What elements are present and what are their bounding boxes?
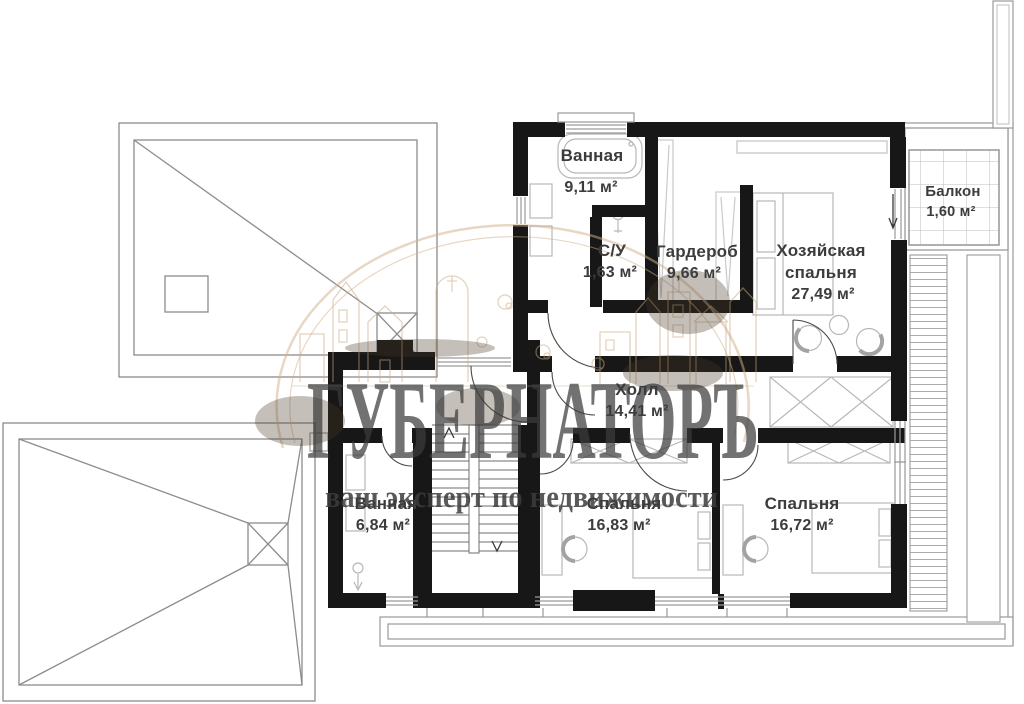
room-area-master: 27,49 м² xyxy=(791,286,854,303)
chimney-strip xyxy=(993,1,1013,128)
bed-bedroom-1 xyxy=(633,505,713,578)
bed-bedroom-2 xyxy=(812,503,893,573)
room-label-bedroom-1: Спальня xyxy=(587,494,662,513)
room-area-hall: 14,41 м² xyxy=(605,403,668,420)
shelf xyxy=(737,141,887,153)
room-label-bedroom-2: Спальня xyxy=(765,494,840,513)
floor-plan-page: ГУБЕРНАТОРЪ ваш эксперт по недвижимости … xyxy=(0,0,1024,704)
room-label-bathroom-lower: Ванная xyxy=(355,494,418,513)
armchair xyxy=(857,329,883,355)
room-label-wardrobe: Гардероб xyxy=(656,242,738,261)
hall-closet xyxy=(770,377,893,427)
sink xyxy=(530,184,552,218)
balcony-exit-arrow xyxy=(889,194,897,228)
room-area-bedroom-2: 16,72 м² xyxy=(770,517,833,534)
room-label-master-line1: Хозяйская xyxy=(776,241,865,260)
shower-drain xyxy=(353,563,363,590)
floor-plan: ГУБЕРНАТОРЪ ваш эксперт по недвижимости … xyxy=(0,0,1024,704)
desk xyxy=(542,505,562,575)
room-area-wardrobe: 9,66 м² xyxy=(667,265,721,282)
deck-planks xyxy=(910,255,947,611)
room-area-wc: 1,63 м² xyxy=(583,264,637,281)
window-frame xyxy=(558,113,634,122)
room-label-bathroom-upper: Ванная xyxy=(561,146,624,165)
watermark-title: ГУБЕРНАТОРЪ xyxy=(307,359,759,483)
armchair xyxy=(796,326,822,352)
roof-outline-bottom-left xyxy=(3,423,315,701)
room-label-wc: С/У xyxy=(598,241,626,260)
room-area-balcony: 1,60 м² xyxy=(926,204,975,220)
balcony-door xyxy=(895,189,901,239)
desk-chair xyxy=(744,537,768,561)
desk xyxy=(723,505,743,575)
terrace-side-strip xyxy=(967,255,1000,622)
room-label-balcony: Балкон xyxy=(925,183,980,200)
room-area-bathroom-lower: 6,84 м² xyxy=(356,517,410,534)
room-area-bathroom-upper: 9,11 м² xyxy=(564,179,617,196)
desk-chair xyxy=(563,537,587,561)
round-table xyxy=(830,316,849,335)
washer xyxy=(530,226,552,256)
room-label-hall: Холл xyxy=(615,380,658,399)
room-area-bedroom-1: 16,83 м² xyxy=(587,517,650,534)
room-label-master-line2: спальня xyxy=(785,263,857,282)
roof-skylight xyxy=(165,276,208,312)
roof-outline-top-left xyxy=(119,123,437,377)
